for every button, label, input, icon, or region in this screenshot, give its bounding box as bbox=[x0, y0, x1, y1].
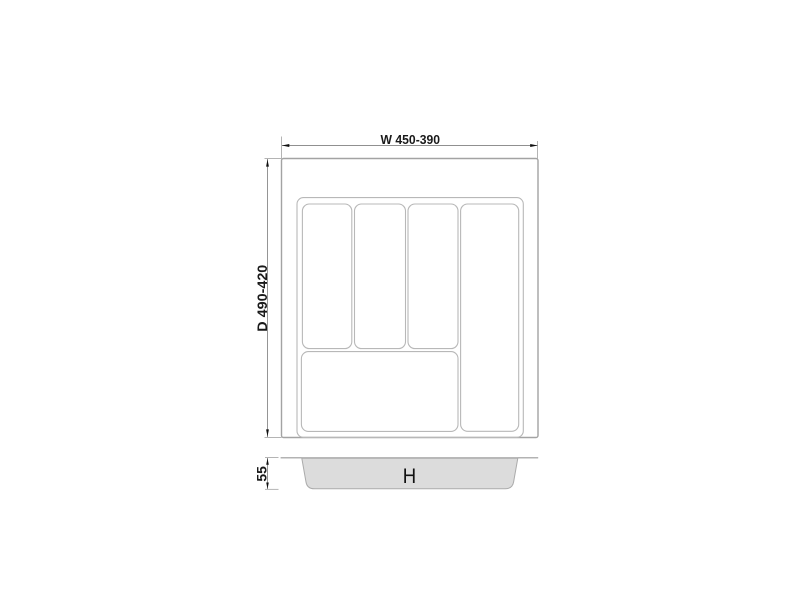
svg-text:55: 55 bbox=[254, 466, 270, 482]
svg-text:W 450-390: W 450-390 bbox=[381, 132, 441, 147]
svg-text:D 490-420: D 490-420 bbox=[254, 264, 270, 331]
svg-text:H: H bbox=[403, 464, 416, 488]
